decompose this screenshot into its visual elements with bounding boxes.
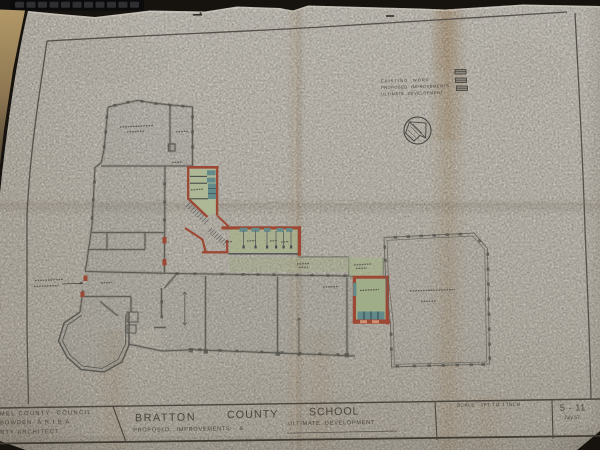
svg-text:BRATTON: BRATTON <box>135 411 196 424</box>
svg-text:BOWDEN A.R.I.B.A: BOWDEN A.R.I.B.A <box>0 419 70 426</box>
svg-text:SCALE 1FT TO 1 INCH: SCALE 1FT TO 1 INCH <box>457 402 521 409</box>
svg-text:5 - 11: 5 - 11 <box>560 402 586 412</box>
svg-text:COUNTY: COUNTY <box>227 408 279 421</box>
svg-text:July 57.: July 57. <box>564 415 581 421</box>
svg-text:SCHOOL: SCHOOL <box>309 406 360 419</box>
svg-text:NTY ARCHITECT.: NTY ARCHITECT. <box>0 429 61 436</box>
